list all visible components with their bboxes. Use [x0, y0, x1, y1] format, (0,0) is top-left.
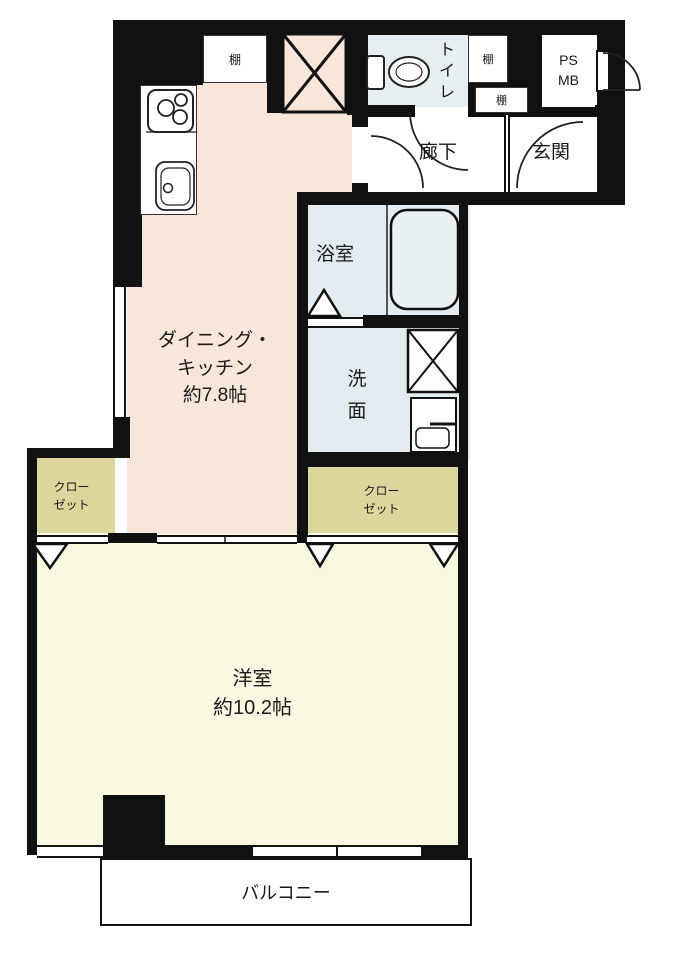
wall-segment	[108, 533, 157, 543]
bath-door-strip	[308, 317, 363, 328]
dk-label-line2: キッチン	[127, 355, 303, 383]
wall-segment	[508, 20, 542, 90]
closet-left-line1: クロー	[33, 478, 110, 496]
wall-segment	[459, 205, 468, 467]
room-washroom	[300, 325, 470, 460]
wall-segment	[297, 452, 463, 467]
western-room-label: 洋室 約10.2帖	[150, 665, 355, 723]
wall-pillar	[103, 795, 165, 852]
closet-right-label: クロー ゼット	[330, 482, 433, 518]
western-room-name: 洋室	[150, 665, 355, 694]
closet-left-label: クロー ゼット	[33, 478, 110, 514]
closet-right-line2: ゼット	[330, 500, 433, 518]
dk-size: 約7.8帖	[127, 382, 303, 410]
wall-segment	[267, 20, 282, 113]
entrance-label: 玄関	[511, 139, 591, 167]
ps-label: PS	[559, 51, 578, 71]
wall-segment	[113, 20, 625, 35]
wall-segment	[421, 845, 468, 858]
balcony: バルコニー	[100, 858, 472, 926]
shelf-kitchen: 棚	[203, 35, 267, 83]
toilet-char1: ト	[436, 41, 458, 62]
hallway-door-opening	[352, 127, 368, 183]
window-left	[113, 287, 126, 417]
entrance-step-line	[504, 115, 510, 192]
wall-segment	[113, 35, 142, 287]
wall-segment	[363, 315, 463, 328]
hallway-label: 廊下	[398, 139, 478, 167]
window-balcony-left	[37, 845, 103, 858]
shelf-entrance-label: 棚	[496, 92, 507, 108]
dk-label: ダイニング・ キッチン 約7.8帖	[127, 327, 303, 410]
shelf-entrance: 棚	[475, 87, 528, 113]
shelf-kitchen-label: 棚	[229, 51, 241, 68]
wall-segment	[458, 467, 468, 543]
wall-segment	[113, 417, 130, 448]
toilet-char2: イ	[436, 62, 458, 83]
kitchen-counter	[140, 85, 197, 215]
window-balcony-right	[253, 845, 421, 858]
wall-segment	[103, 845, 253, 858]
dk-label-line1: ダイニング・	[127, 327, 303, 355]
mb-label: MB	[558, 71, 579, 91]
wall-segment	[347, 20, 368, 115]
wall-segment	[297, 192, 625, 205]
toilet-char3: レ	[436, 83, 458, 104]
ps-mb-box: PS MB	[542, 35, 595, 107]
balcony-label: バルコニー	[241, 879, 331, 905]
toilet-label: ト イ レ	[436, 41, 458, 103]
wall-segment	[355, 105, 415, 117]
wall-segment	[28, 448, 130, 458]
wall-segment	[597, 20, 625, 205]
western-room-size: 約10.2帖	[150, 694, 355, 723]
closet-left-door-rail	[37, 535, 108, 544]
washroom-char2: 面	[343, 396, 371, 428]
closet-right-line1: クロー	[330, 482, 433, 500]
floorplan-canvas: 棚 棚 棚 PS MB バルコニー	[0, 0, 677, 954]
closet-left-line2: ゼット	[33, 496, 110, 514]
closet-right-door-rail	[307, 535, 458, 544]
washroom-label: 洗 面	[343, 364, 371, 429]
shelf-toilet-side: 棚	[468, 35, 508, 83]
bathroom-label: 浴室	[300, 241, 370, 269]
wall-segment	[458, 543, 468, 855]
dk-sliding-door-rail	[157, 535, 297, 544]
shelf-toilet-side-label: 棚	[483, 51, 494, 67]
washroom-char1: 洗	[343, 364, 371, 396]
